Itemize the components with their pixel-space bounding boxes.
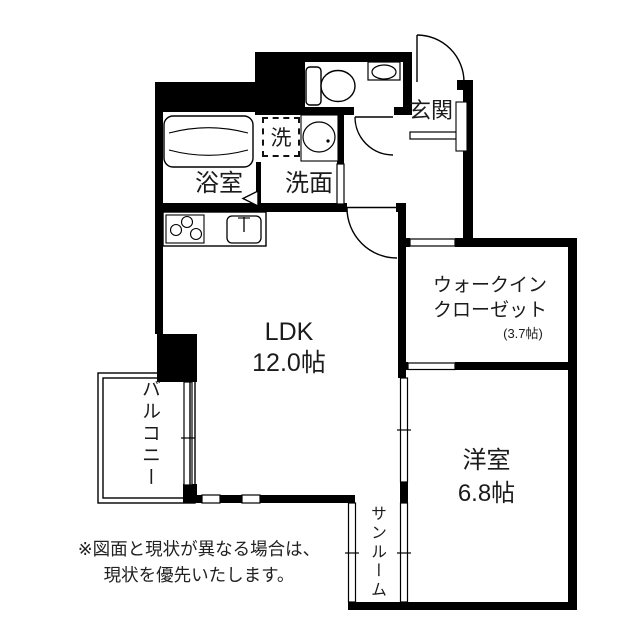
bathtub-icon (164, 116, 253, 167)
room-label-bathroom: 浴室 (184, 171, 254, 197)
room-label-washroom: 洗面 (274, 171, 344, 197)
wall-right (568, 238, 577, 610)
washbasin-icon (301, 115, 338, 161)
wall-closet-bottom-left (398, 362, 408, 370)
closet-doorway-north (410, 239, 455, 246)
balcony-sliding-window (184, 382, 192, 485)
wall-bath-band (155, 82, 257, 112)
room-area-ldk: 12.0帖 (229, 350, 349, 378)
disclaimer-line1: ※図面と現状が異なる場合は、 (68, 537, 330, 563)
disclaimer-line2: 現状を優先いたします。 (68, 563, 330, 589)
room-label-genkan: 玄関 (403, 99, 459, 123)
room-label-western: 洋室 (429, 448, 544, 474)
entrance-door-arc (417, 35, 464, 82)
room-label-ldk: LDK (229, 319, 349, 347)
room-area-western: 6.8帖 (429, 481, 544, 507)
wall-ldk-bottom-c (260, 495, 355, 503)
hand-wash-basin-icon (368, 62, 400, 80)
closet-doorway-south (408, 363, 455, 370)
wall-ldk-right (398, 203, 406, 378)
wall-column-top (255, 52, 305, 115)
wall-toilet-bottom-left (305, 107, 354, 115)
wall-ldk-top (157, 203, 347, 212)
room-label-wic-line2: クローゼット (420, 301, 560, 322)
room-label-balcony: バルコニー (136, 379, 163, 489)
toilet-icon (306, 67, 355, 105)
window-ldk-south-2 (242, 495, 260, 503)
genkan-step-edge (410, 132, 463, 139)
washing-machine-space: 洗 (262, 117, 300, 157)
wall-closet-bottom-right (455, 362, 577, 370)
ldk-door-arc (347, 208, 397, 258)
window-ldk-south-1 (202, 495, 220, 503)
wall-pillar-sw (157, 334, 197, 382)
wall-closet-top-left (398, 238, 410, 247)
room-label-laundry: 洗 (271, 122, 292, 152)
wall-bottom (348, 602, 577, 610)
room-area-wic: (3.7帖) (473, 327, 573, 341)
floorplan-canvas: 玄関 浴室 洗面 洗 LDK 12.0帖 ウォークイン クローゼット (3.7帖… (0, 0, 640, 640)
wall-post-below-window (400, 482, 408, 503)
wall-ldk-bottom-b (220, 495, 242, 503)
toilet-door-arc (355, 117, 393, 155)
disclaimer-note: ※図面と現状が異なる場合は、 現状を優先いたします。 (68, 537, 330, 588)
room-label-sunroom: サンルーム (364, 505, 388, 600)
kitchen-counter-icon (163, 212, 266, 246)
wall-closet-top-right (455, 238, 577, 247)
room-label-wic-line1: ウォークイン (420, 276, 560, 297)
